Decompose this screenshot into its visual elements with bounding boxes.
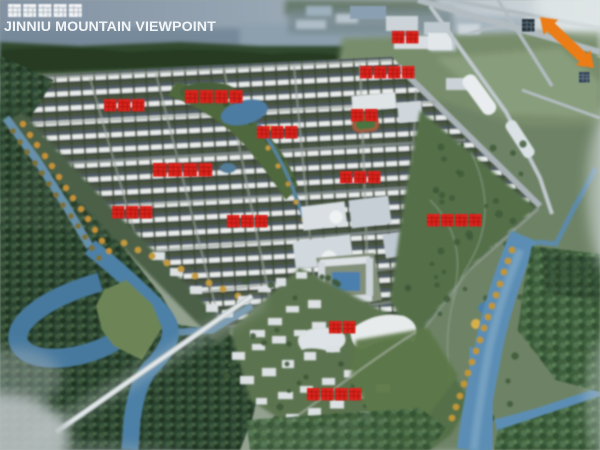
svg-text:JINNIU MOUNTAIN VIEWPOINT: JINNIU MOUNTAIN VIEWPOINT xyxy=(4,19,216,35)
